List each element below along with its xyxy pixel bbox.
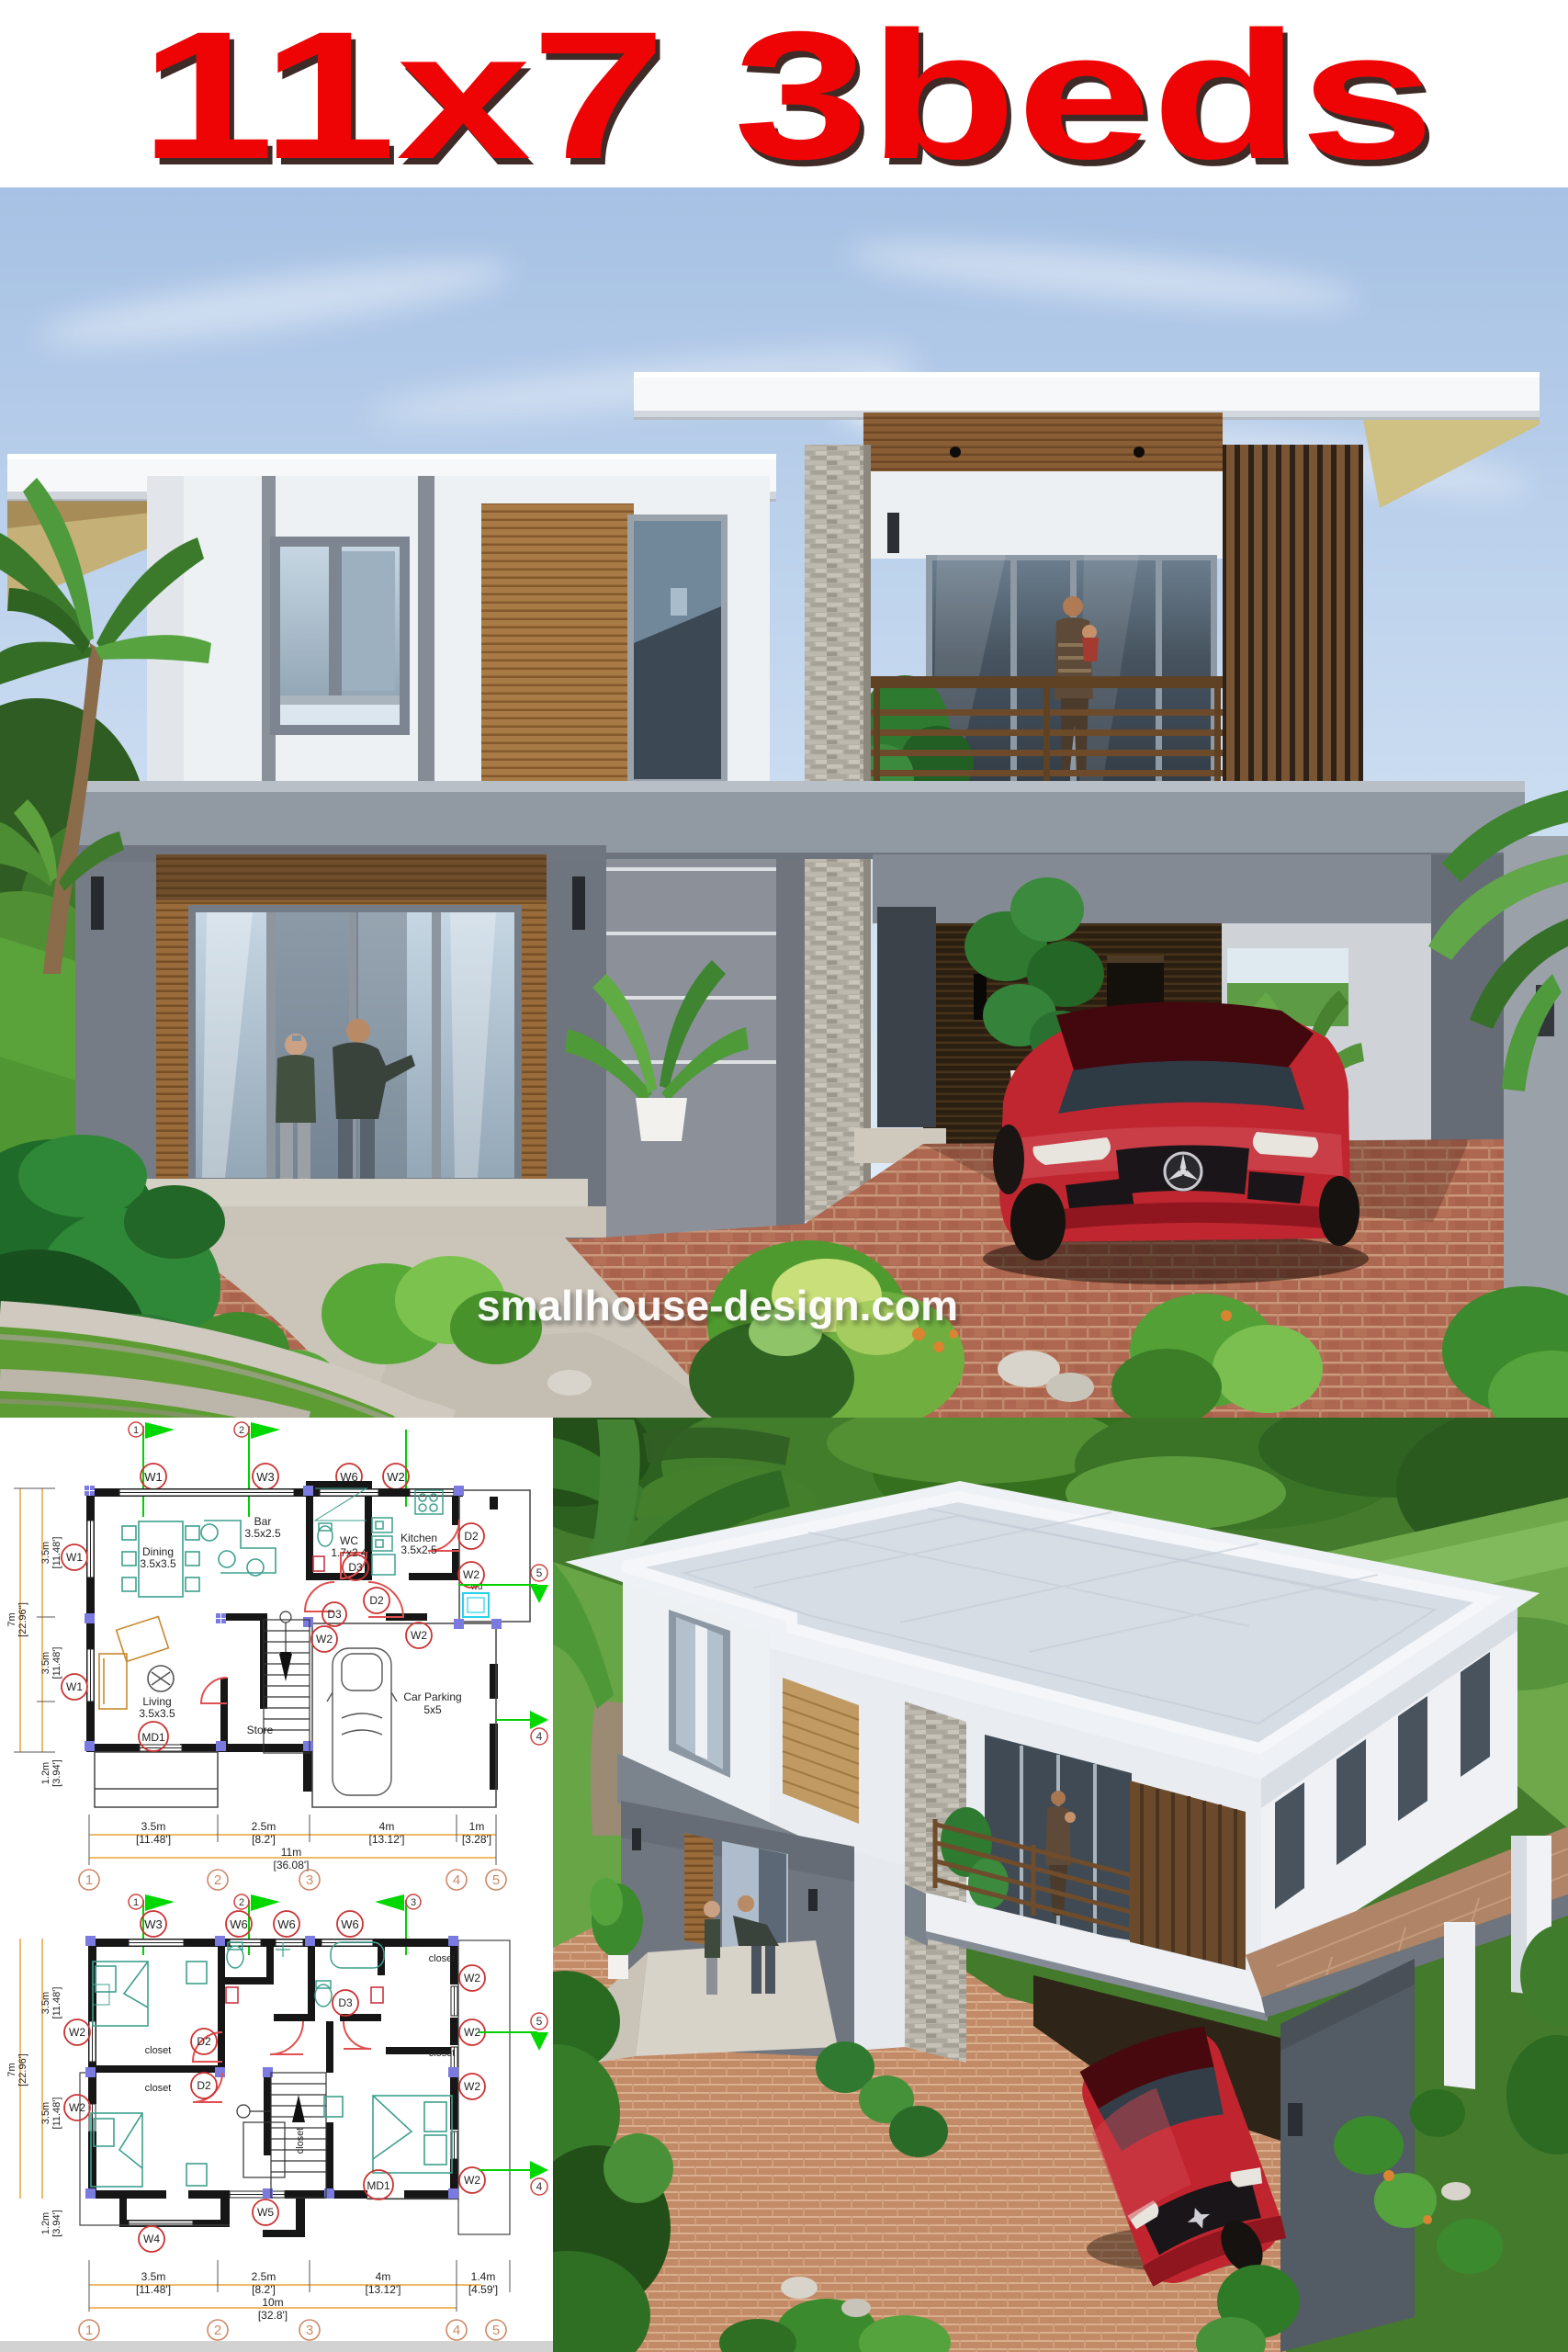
svg-text:[3.28']: [3.28'] (462, 1833, 491, 1846)
svg-text:3.5m: 3.5m (40, 1992, 51, 2014)
svg-text:D2: D2 (369, 1594, 384, 1607)
svg-text:W2: W2 (464, 2174, 480, 2187)
svg-text:3: 3 (306, 2323, 313, 2338)
svg-text:7m: 7m (6, 1612, 17, 1626)
svg-text:11m: 11m (281, 1846, 301, 1859)
svg-text:MD1: MD1 (367, 2179, 390, 2192)
svg-text:W1: W1 (66, 1680, 83, 1693)
svg-text:3: 3 (306, 1872, 313, 1888)
svg-text:D3: D3 (338, 1996, 353, 2009)
svg-text:[4.59']: [4.59'] (468, 2283, 498, 2296)
svg-text:3.5x2.5: 3.5x2.5 (400, 1543, 437, 1556)
svg-text:7m: 7m (6, 2063, 17, 2076)
svg-text:smallhouse-design.com: smallhouse-design.com (477, 1282, 958, 1329)
svg-text:[32.8']: [32.8'] (258, 2309, 288, 2322)
svg-text:W6: W6 (341, 1917, 359, 1931)
svg-text:W6: W6 (230, 1917, 248, 1931)
svg-text:[11.48']: [11.48'] (136, 1833, 171, 1846)
svg-text:2: 2 (239, 1425, 244, 1436)
svg-text:MD1: MD1 (141, 1731, 165, 1744)
svg-text:Dining: Dining (142, 1545, 174, 1558)
svg-text:1: 1 (133, 1425, 139, 1436)
svg-text:W4: W4 (143, 2233, 160, 2245)
svg-text:W2: W2 (316, 1633, 333, 1645)
svg-text:W3: W3 (144, 1917, 163, 1931)
svg-text:2: 2 (214, 1872, 221, 1888)
svg-text:3.5m: 3.5m (141, 1820, 166, 1833)
svg-text:4m: 4m (379, 1820, 395, 1833)
svg-text:W1: W1 (144, 1470, 163, 1484)
svg-text:D2: D2 (197, 2035, 211, 2048)
svg-text:3.5m: 3.5m (40, 2102, 51, 2124)
svg-text:1: 1 (85, 2323, 93, 2338)
svg-text:Car Parking: Car Parking (403, 1690, 461, 1703)
svg-text:3.5x2.5: 3.5x2.5 (244, 1527, 281, 1540)
svg-text:3.5m: 3.5m (40, 1652, 51, 1674)
svg-text:4: 4 (453, 2323, 460, 2338)
svg-text:WC: WC (340, 1534, 358, 1547)
svg-text:Kitchen: Kitchen (400, 1532, 437, 1544)
svg-text:2.5m: 2.5m (252, 2270, 276, 2283)
svg-text:3.5x3.5: 3.5x3.5 (139, 1707, 175, 1720)
svg-text:1.2m: 1.2m (40, 2212, 51, 2234)
svg-text:[22.96'']: [22.96''] (17, 1602, 28, 1637)
svg-text:W2: W2 (464, 2080, 480, 2093)
svg-text:closet: closet (295, 2128, 306, 2154)
svg-text:closet: closet (429, 1953, 456, 1964)
svg-text:5x5: 5x5 (423, 1703, 442, 1716)
svg-text:Store: Store (247, 1724, 274, 1736)
svg-text:3.5m: 3.5m (40, 1542, 51, 1564)
svg-text:11x7 3beds: 11x7 3beds (140, 0, 1435, 197)
svg-text:1.2m: 1.2m (40, 1762, 51, 1784)
svg-text:W2: W2 (411, 1629, 427, 1642)
svg-text:[22.96']: [22.96'] (17, 2053, 28, 2086)
svg-text:2: 2 (239, 1897, 244, 1908)
svg-text:[13.12']: [13.12'] (366, 2283, 401, 2296)
svg-text:W2: W2 (464, 2026, 480, 2039)
svg-text:4: 4 (536, 2180, 543, 2193)
svg-text:W2: W2 (69, 2026, 85, 2039)
svg-text:W6: W6 (277, 1917, 296, 1931)
svg-text:[36.08']: [36.08'] (274, 1859, 310, 1871)
svg-text:W2: W2 (69, 2101, 85, 2114)
svg-text:W1: W1 (66, 1551, 83, 1564)
svg-text:D3: D3 (327, 1608, 342, 1621)
svg-text:2: 2 (214, 2323, 221, 2338)
svg-text:3.5x3.5: 3.5x3.5 (140, 1557, 176, 1570)
svg-text:W2: W2 (387, 1470, 405, 1484)
svg-text:1.4m: 1.4m (471, 2270, 496, 2283)
svg-text:[11.48']: [11.48'] (51, 2098, 62, 2130)
svg-text:5: 5 (536, 2015, 543, 2028)
svg-text:4: 4 (453, 1872, 460, 1888)
svg-text:[3.94']: [3.94'] (51, 2210, 62, 2237)
svg-text:D2: D2 (197, 2079, 211, 2092)
svg-text:W2: W2 (464, 1972, 480, 1984)
svg-text:[11.48']: [11.48'] (51, 1537, 62, 1569)
svg-text:5: 5 (536, 1566, 543, 1579)
svg-text:10m: 10m (262, 2296, 283, 2309)
svg-text:[3.94']: [3.94'] (51, 1759, 62, 1787)
svg-text:W5: W5 (257, 2206, 274, 2219)
svg-text:[11.48']: [11.48'] (51, 1987, 62, 2019)
svg-text:closet: closet (145, 2083, 172, 2094)
svg-text:5: 5 (492, 1872, 500, 1888)
svg-text:1: 1 (85, 1872, 93, 1888)
svg-text:[11.48']: [11.48'] (51, 1647, 62, 1679)
svg-text:closet: closet (429, 2048, 456, 2059)
svg-text:4: 4 (536, 1730, 543, 1743)
svg-text:2.5m: 2.5m (252, 1820, 276, 1833)
svg-text:3.5m: 3.5m (141, 2270, 166, 2283)
svg-text:W3: W3 (256, 1470, 275, 1484)
svg-text:[11.48']: [11.48'] (136, 2283, 171, 2296)
svg-text:[8.2']: [8.2'] (252, 2283, 276, 2296)
svg-text:closet: closet (145, 2045, 172, 2056)
svg-text:[13.12']: [13.12'] (369, 1833, 405, 1846)
svg-text:4m: 4m (376, 2270, 391, 2283)
svg-text:1: 1 (133, 1897, 139, 1908)
svg-text:D3: D3 (348, 1561, 363, 1574)
svg-text:W2: W2 (463, 1568, 479, 1581)
svg-text:3: 3 (411, 1897, 416, 1908)
svg-text:D2: D2 (464, 1530, 479, 1543)
svg-text:5: 5 (492, 2323, 500, 2338)
svg-text:1m: 1m (469, 1820, 485, 1833)
svg-text:Living: Living (142, 1695, 171, 1708)
svg-text:Bar: Bar (254, 1515, 272, 1528)
svg-text:[8.2']: [8.2'] (252, 1833, 276, 1846)
